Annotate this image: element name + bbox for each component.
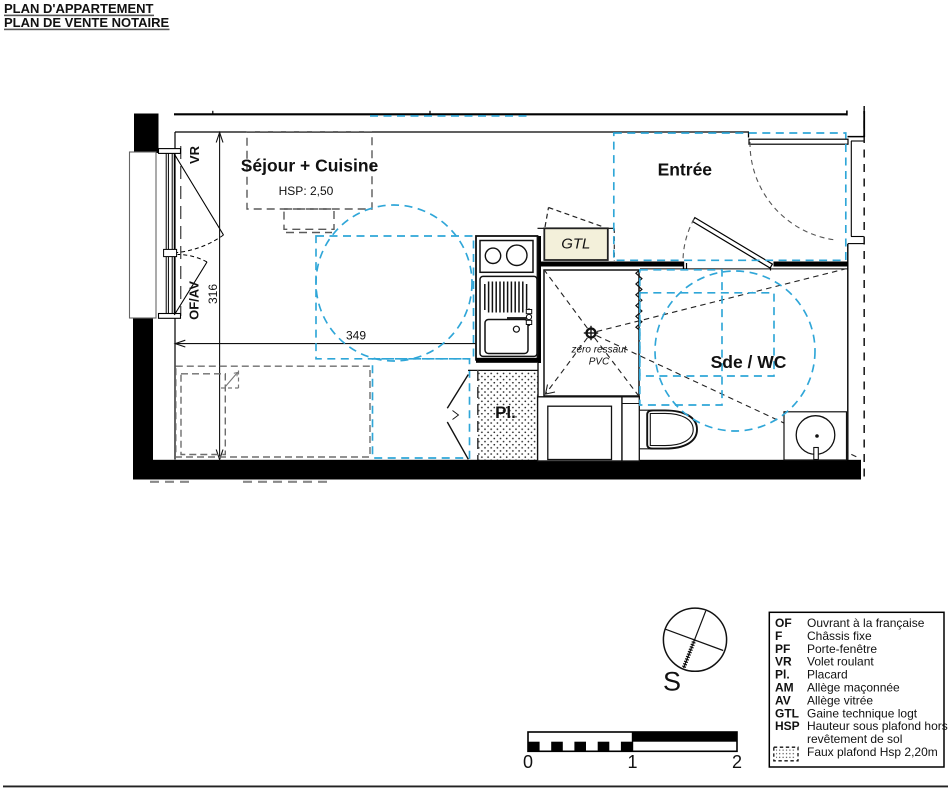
svg-text:HSP: HSP — [775, 719, 800, 733]
svg-text:Pl.: Pl. — [495, 403, 516, 422]
svg-text:AM: AM — [775, 681, 794, 695]
svg-text:Ouvrant à la française: Ouvrant à la française — [807, 616, 925, 630]
svg-text:PF: PF — [775, 642, 790, 656]
svg-text:GTL: GTL — [561, 236, 590, 253]
svg-text:zéro ressaut: zéro ressaut — [570, 345, 627, 356]
svg-text:Allège vitrée: Allège vitrée — [807, 693, 873, 707]
svg-text:Entrée: Entrée — [658, 160, 713, 180]
svg-text:F: F — [775, 629, 782, 643]
svg-text:GTL: GTL — [775, 706, 799, 720]
svg-text:1: 1 — [627, 752, 637, 772]
svg-text:Porte-fenêtre: Porte-fenêtre — [807, 642, 877, 656]
svg-text:PLAN D'APPARTEMENT: PLAN D'APPARTEMENT — [4, 1, 154, 16]
svg-text:Allège maçonnée: Allège maçonnée — [807, 681, 900, 695]
svg-text:OF/AV: OF/AV — [187, 281, 202, 320]
svg-text:OF: OF — [775, 616, 792, 630]
svg-text:349: 349 — [346, 329, 366, 343]
svg-text:AV: AV — [775, 693, 791, 707]
svg-text:Pl.: Pl. — [775, 668, 790, 682]
svg-text:Faux plafond Hsp 2,20m: Faux plafond Hsp 2,20m — [807, 745, 938, 759]
svg-text:316: 316 — [206, 284, 220, 304]
svg-text:revêtement de sol: revêtement de sol — [807, 732, 902, 746]
svg-text:Châssis fixe: Châssis fixe — [807, 629, 872, 643]
svg-text:Gaine technique logt: Gaine technique logt — [807, 706, 918, 720]
svg-text:HSP: 2,50: HSP: 2,50 — [279, 184, 334, 198]
svg-text:S: S — [663, 667, 681, 697]
svg-text:2: 2 — [732, 752, 742, 772]
svg-text:PLAN DE VENTE NOTAIRE: PLAN DE VENTE NOTAIRE — [4, 15, 169, 30]
svg-text:Volet roulant: Volet roulant — [807, 655, 874, 669]
svg-text:VR: VR — [775, 655, 792, 669]
svg-text:Sde / WC: Sde / WC — [711, 352, 787, 372]
svg-text:Séjour + Cuisine: Séjour + Cuisine — [241, 156, 379, 176]
svg-text:Hauteur sous plafond hors: Hauteur sous plafond hors — [807, 719, 948, 733]
svg-text:Placard: Placard — [807, 668, 848, 682]
svg-text:0: 0 — [523, 752, 533, 772]
svg-text:PVC: PVC — [589, 357, 610, 368]
svg-text:VR: VR — [187, 145, 202, 164]
